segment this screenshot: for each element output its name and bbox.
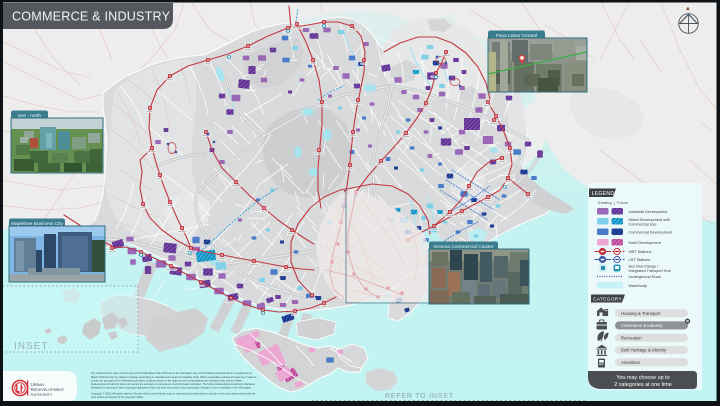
svg-text:COMMERCE & INDUSTRY: COMMERCE & INDUSTRY (12, 10, 171, 24)
svg-text:You may choose up to: You may choose up to (616, 375, 669, 381)
svg-text:Built Heritage & Identity: Built Heritage & Identity (621, 348, 667, 353)
svg-text:Commerce & Industry: Commerce & Industry (621, 323, 663, 328)
svg-text:Copyright © 2019. All rights r: Copyright © 2019. All rights reserved. N… (91, 392, 256, 396)
svg-text:Commercial Development: Commercial Development (629, 231, 674, 235)
svg-text:Redevelopment Authority does n: Redevelopment Authority does not warrant… (91, 382, 255, 386)
svg-text:Waterbody: Waterbody (629, 284, 647, 288)
svg-text:Integrated Transport Hub: Integrated Transport Hub (629, 269, 671, 273)
svg-text:Amenities: Amenities (621, 360, 640, 365)
svg-text:prior written permission of th: prior written permission of the copyrigh… (91, 395, 144, 399)
svg-text:MRT Stations: MRT Stations (629, 250, 652, 254)
svg-text:The content herein does not fo: The content herein does not form part of… (91, 371, 252, 375)
svg-text:Commercial Use: Commercial Use (629, 223, 657, 227)
svg-text:Recreation: Recreation (621, 335, 642, 340)
svg-text:Industrial Development: Industrial Development (629, 210, 669, 214)
svg-text:March 2019 but may be subject: March 2019 but may be subject to change … (91, 375, 257, 379)
svg-text:all liability for any injury,: all liability for any injury, loss or da… (91, 385, 252, 389)
svg-text:Bus Interchange /: Bus Interchange / (629, 265, 660, 269)
svg-text:Hotel Development: Hotel Development (629, 241, 662, 245)
svg-text:LEGEND: LEGEND (592, 191, 615, 197)
svg-text:AUTHORITY: AUTHORITY (31, 392, 53, 397)
svg-text:2 categories at one time: 2 categories at one time (614, 382, 672, 388)
svg-text:Existing | Future: Existing | Future (598, 200, 628, 205)
svg-text:Housing & Transport: Housing & Transport (621, 311, 661, 316)
svg-text:LRT Stations: LRT Stations (629, 258, 651, 262)
svg-text:INSET: INSET (14, 341, 48, 352)
svg-text:ensure the accuracy of the inf: ensure the accuracy of the information p… (91, 378, 243, 382)
svg-text:REFER TO INSET: REFER TO INSET (385, 393, 454, 400)
svg-text:Underground Road: Underground Road (629, 275, 661, 279)
svg-text:Mixed Development with: Mixed Development with (629, 218, 670, 222)
svg-text:CATEGORY: CATEGORY (593, 297, 622, 303)
svg-text:REDEVELOPMENT: REDEVELOPMENT (31, 387, 65, 392)
